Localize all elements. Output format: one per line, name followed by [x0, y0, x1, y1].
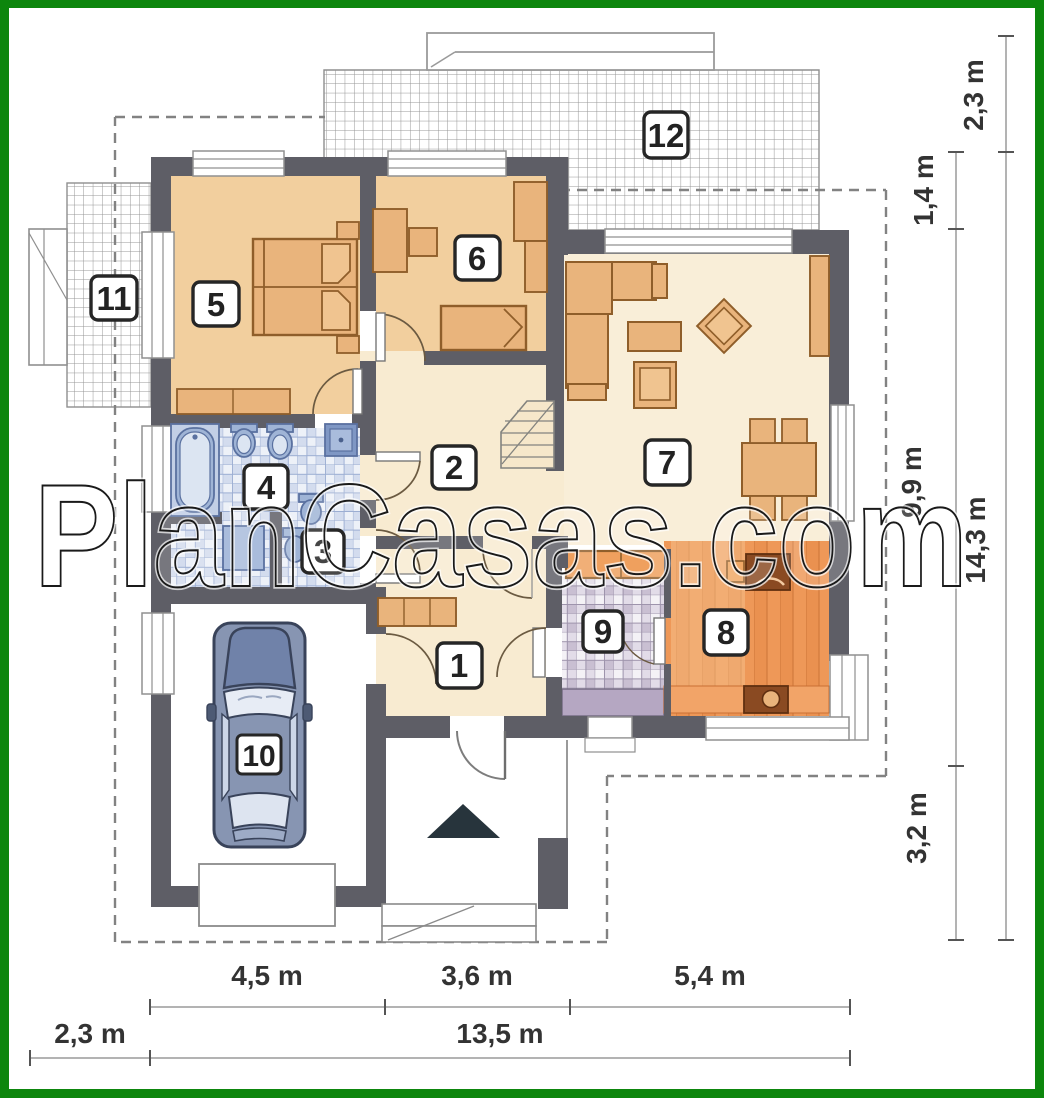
svg-text:12: 12 — [648, 117, 685, 154]
svg-text:5,4 m: 5,4 m — [674, 960, 746, 991]
svg-text:3,2 m: 3,2 m — [901, 792, 932, 864]
svg-text:9: 9 — [594, 613, 612, 650]
svg-text:6: 6 — [468, 240, 486, 277]
svg-text:2,3 m: 2,3 m — [54, 1018, 126, 1049]
svg-text:1,4 m: 1,4 m — [908, 154, 939, 226]
svg-text:10: 10 — [242, 740, 275, 773]
svg-text:PlanCasas.com: PlanCasas.com — [34, 454, 968, 617]
svg-text:3,6 m: 3,6 m — [441, 960, 513, 991]
svg-text:13,5 m: 13,5 m — [456, 1018, 543, 1049]
svg-text:1: 1 — [450, 647, 468, 684]
svg-text:5: 5 — [207, 286, 225, 323]
svg-text:4,5 m: 4,5 m — [231, 960, 303, 991]
svg-text:2,3 m: 2,3 m — [958, 59, 989, 131]
svg-text:8: 8 — [717, 614, 735, 651]
svg-text:11: 11 — [97, 280, 132, 317]
